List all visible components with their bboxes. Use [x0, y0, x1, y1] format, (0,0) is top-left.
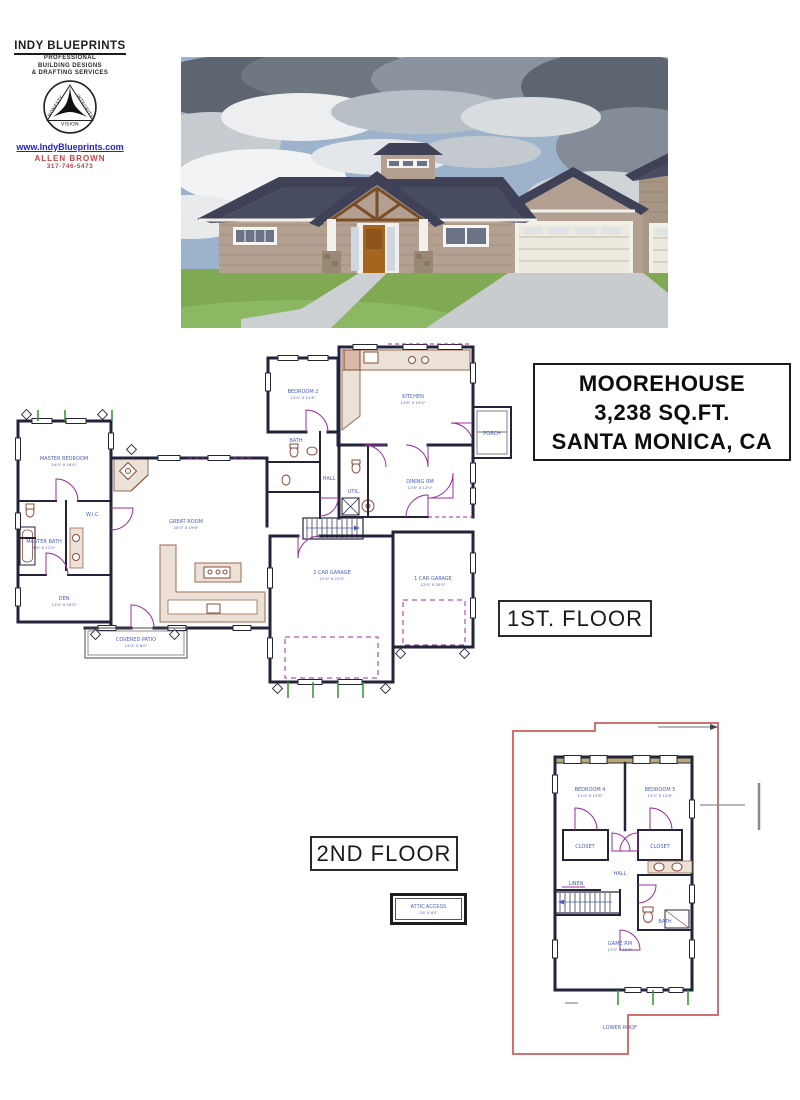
blueprint-sheet: INDY BLUEPRINTS PROFESSIONAL BUILDING DE… — [0, 0, 800, 1100]
counters-fixtures — [20, 350, 470, 622]
room-dims: 20'0" X 19'6" — [173, 525, 198, 530]
room-dims: 11'0" X 12'6" — [647, 793, 672, 798]
room-labels2: BEDROOM 4 11'0" X 12'6" BEDROOM 5 11'0" … — [569, 787, 676, 1031]
company-name: INDY BLUEPRINTS — [14, 40, 125, 55]
room-label: CLOSET — [575, 844, 595, 850]
emblem-word-left: HONESTY — [47, 94, 65, 118]
room-label: CLOSET — [650, 844, 670, 850]
logo-emblem-icon: HONESTY INTEGRITY VISION — [42, 79, 98, 135]
room-label: UTIL. — [348, 489, 361, 495]
room-dims: 11'0" X 11'6" — [290, 395, 315, 400]
room-dims: 11'0" X 10'0" — [51, 602, 76, 607]
room-label: W.I.C. — [86, 512, 101, 518]
contact-phone: 317-746-5473 — [10, 163, 130, 170]
room-label: PORCH — [483, 431, 501, 437]
project-name: MOOREHOUSE — [535, 369, 789, 398]
logo-block: INDY BLUEPRINTS PROFESSIONAL BUILDING DE… — [10, 36, 130, 170]
room-dims: 14'0" X 16'0" — [51, 462, 76, 467]
room-dims: 11'6" X 12'0" — [407, 485, 432, 490]
room-label: LOWER ROOF — [603, 1025, 637, 1031]
room-label: BATH — [289, 438, 303, 444]
first-floor-tag: 1ST. FLOOR — [498, 600, 652, 637]
room-dims: 21'4" X 21'0" — [319, 576, 344, 581]
project-area: 3,238 SQ.FT. — [535, 398, 789, 427]
room-label: LINEN — [569, 881, 584, 887]
room-dims: 9'0" X 11'0" — [33, 545, 56, 550]
project-location: SANTA MONICA, CA — [535, 427, 789, 456]
tagline-line2: BUILDING DESIGNS — [10, 63, 130, 71]
room-label: HALL — [614, 871, 627, 877]
room-dims: 13'6" X 15'0" — [400, 400, 425, 405]
second-floor-tag: 2ND FLOOR — [310, 836, 458, 871]
website-link[interactable]: www.IndyBlueprints.com — [10, 142, 130, 152]
stairs2 — [555, 892, 620, 913]
tagline-line1: PROFESSIONAL — [10, 55, 130, 63]
room-dims: 12'0" X 20'0" — [420, 582, 445, 587]
room-label: BATH — [658, 919, 672, 925]
tagline-line3: & DRAFTING SERVICES — [10, 70, 130, 78]
detail-box-dims: 2'6" X 6'0" — [419, 910, 437, 915]
room-dims: 11'0" X 12'6" — [577, 793, 602, 798]
room-dims: 14'0" X 8'0" — [125, 643, 148, 648]
house-rendering — [181, 57, 668, 328]
first-floor-tag-text: 1ST. FLOOR — [507, 606, 643, 632]
title-block: MOOREHOUSE 3,238 SQ.FT. SANTA MONICA, CA — [533, 363, 791, 461]
attic-detail-box: ATTIC ACCESS 2'6" X 6'0" — [390, 893, 467, 925]
room-dims: 17'0" X 15'6" — [607, 947, 632, 952]
room-label: HALL — [323, 476, 336, 482]
second-floor-tag-text: 2ND FLOOR — [317, 841, 452, 867]
first-floor-plan: MASTER BEDROOM 14'0" X 16'0" MASTER BATH… — [8, 338, 538, 706]
contact-name: ALLEN BROWN — [10, 154, 130, 163]
fixtures2 — [643, 861, 692, 928]
second-floor-plan: BEDROOM 4 11'0" X 12'6" BEDROOM 5 11'0" … — [500, 715, 800, 1100]
emblem-word-bottom: VISION — [61, 121, 79, 127]
